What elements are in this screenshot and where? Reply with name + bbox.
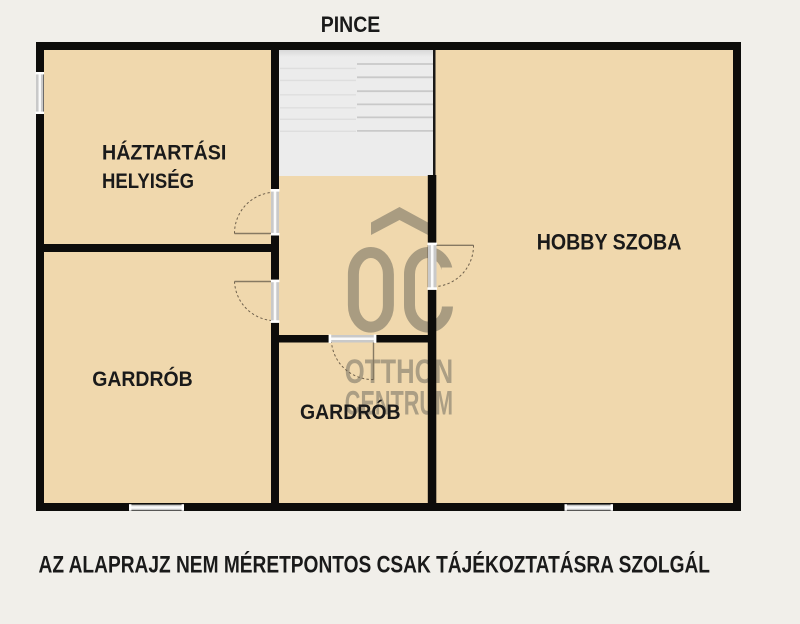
- svg-text:GARDRÓB: GARDRÓB: [92, 366, 193, 391]
- svg-text:GARDRÓB: GARDRÓB: [300, 399, 401, 424]
- svg-text:HOBBY SZOBA: HOBBY SZOBA: [537, 230, 682, 255]
- svg-text:PINCE: PINCE: [321, 12, 381, 37]
- svg-text:HÁZTARTÁSI: HÁZTARTÁSI: [102, 140, 226, 165]
- svg-text:HELYISÉG: HELYISÉG: [102, 168, 194, 193]
- svg-text:AZ ALAPRAJZ NEM MÉRETPONTOS CS: AZ ALAPRAJZ NEM MÉRETPONTOS CSAK TÁJÉKOZ…: [39, 551, 711, 579]
